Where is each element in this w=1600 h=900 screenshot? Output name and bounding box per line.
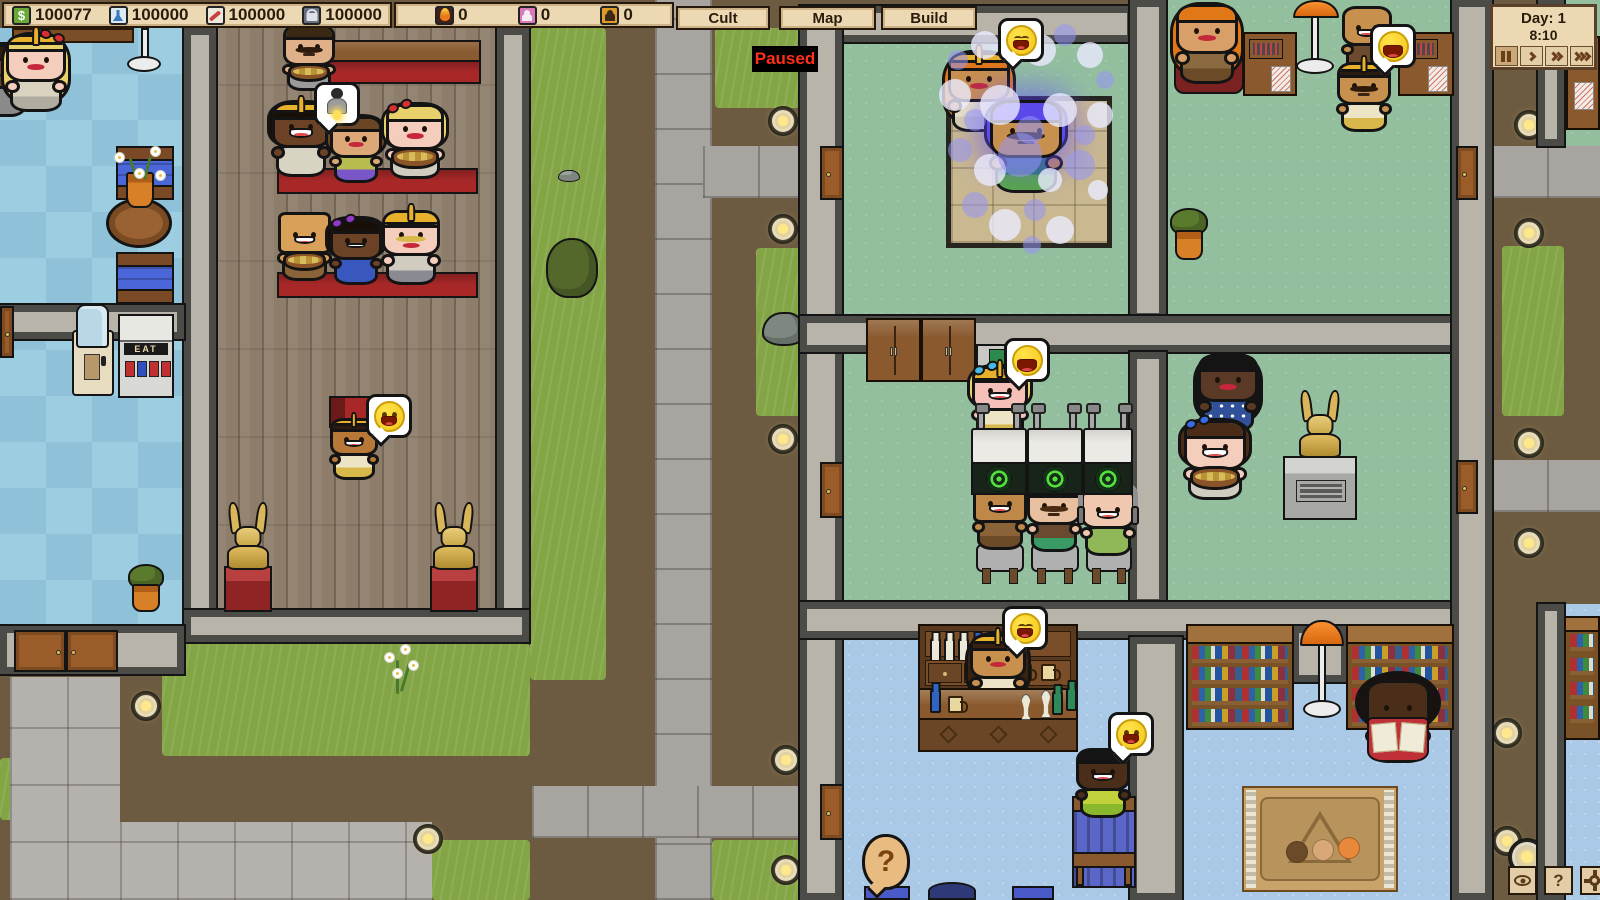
- build-button[interactable]: Build: [881, 6, 977, 30]
- ritual-bubble: [939, 79, 971, 111]
- resource-security: 100000: [302, 5, 382, 25]
- bar-counter-front: [918, 718, 1078, 752]
- ground-light: [768, 424, 798, 454]
- bush[interactable]: [546, 238, 598, 298]
- time-label: 8:10: [1493, 27, 1594, 43]
- partial-table: [928, 882, 976, 900]
- idol-pedestal: [224, 566, 272, 612]
- shrine-pedestal: [1283, 456, 1357, 520]
- resource-panel: $100077100000100000100000: [2, 2, 392, 28]
- person-desk-woman[interactable]: [1176, 4, 1238, 91]
- shelf-bottle: [930, 637, 941, 662]
- shelf-mug: [1041, 664, 1056, 681]
- emote-laugh: [1370, 24, 1416, 68]
- resource-value: 100000: [229, 5, 286, 25]
- path: [120, 822, 432, 900]
- emote-joy: [998, 18, 1044, 62]
- standing-lamp-pole: [1311, 14, 1319, 64]
- meter-panel: 000: [394, 2, 674, 28]
- ritual-bubble: [1087, 102, 1113, 128]
- resource-value: 0: [541, 5, 550, 25]
- wall: [1130, 0, 1166, 320]
- resource-value: 0: [623, 5, 632, 25]
- door-double-right[interactable]: [66, 630, 118, 672]
- door[interactable]: [820, 462, 844, 518]
- flower: [155, 170, 166, 181]
- standing-lamp-base: [1303, 700, 1341, 718]
- wall: [184, 28, 216, 642]
- waiting-chair[interactable]: [116, 252, 174, 304]
- bookshelf[interactable]: [1564, 616, 1600, 740]
- bottle: [1052, 690, 1063, 715]
- vending-sign: EAT: [124, 343, 168, 355]
- ground-light: [1514, 218, 1544, 248]
- ground-light: [768, 214, 798, 244]
- person-salon-client-3[interactable]: [1081, 486, 1135, 562]
- door[interactable]: [1456, 460, 1478, 514]
- resource-influence: 100000: [206, 5, 286, 25]
- vending-machine[interactable]: EAT: [118, 314, 174, 398]
- path: [655, 0, 712, 900]
- shrine-statue[interactable]: [1294, 390, 1346, 462]
- map-button[interactable]: Map: [779, 6, 876, 30]
- ground-light: [413, 824, 443, 854]
- door[interactable]: [820, 146, 844, 200]
- speaker-icon: [518, 6, 537, 25]
- paused-indicator: Paused: [752, 46, 818, 72]
- play-button[interactable]: [1520, 46, 1543, 66]
- ritual-bubble: [998, 133, 1042, 177]
- person-lobby-priestess[interactable]: [6, 34, 66, 118]
- ritual-bubble: [948, 138, 972, 162]
- wall: [800, 6, 842, 900]
- person-pew-woman-brown[interactable]: [330, 116, 382, 189]
- game-viewport[interactable]: EAT: [0, 0, 1600, 900]
- pebble: [558, 170, 580, 182]
- floor-lamp-base: [127, 56, 161, 72]
- idol-statue[interactable]: [222, 502, 274, 572]
- pause-button[interactable]: [1495, 46, 1518, 66]
- resource-value: 100000: [132, 5, 189, 25]
- ground-light: [771, 745, 801, 775]
- ritual-bubble: [1077, 42, 1103, 68]
- settings-button[interactable]: [1580, 866, 1600, 895]
- ritual-bubble: [1096, 71, 1114, 89]
- ritual-bubble: [1038, 168, 1062, 192]
- door[interactable]: [0, 306, 14, 358]
- visibility-button[interactable]: [1508, 866, 1537, 895]
- cultist-icon: [600, 6, 619, 25]
- door[interactable]: [1456, 146, 1478, 200]
- grass: [530, 28, 606, 680]
- ritual-bubble: [1046, 216, 1074, 244]
- emote-smile: [366, 394, 412, 438]
- flower: [134, 168, 145, 179]
- ground-light: [1514, 428, 1544, 458]
- ground-light: [1492, 718, 1522, 748]
- security-icon: [302, 6, 321, 25]
- path: [10, 677, 120, 900]
- ritual-bubble: [1043, 93, 1077, 127]
- ground-light: [771, 855, 801, 885]
- wall: [497, 28, 529, 642]
- flower: [392, 668, 403, 679]
- wall: [1130, 637, 1182, 900]
- partial-chair: [1012, 886, 1054, 900]
- fastest-forward-button[interactable]: [1570, 46, 1593, 66]
- bottle: [930, 688, 941, 713]
- ground-light: [768, 106, 798, 136]
- path: [532, 786, 842, 838]
- standing-lamp-base: [1296, 58, 1334, 74]
- emote-laugh: [1004, 338, 1050, 382]
- brainwash-machine[interactable]: [1083, 404, 1133, 495]
- wall: [1452, 0, 1492, 900]
- cult-button[interactable]: Cult: [676, 6, 770, 30]
- gear-icon: [1589, 875, 1600, 886]
- person-pew-man-helmet[interactable]: [382, 210, 440, 291]
- idol-statue[interactable]: [428, 502, 480, 572]
- bottle: [1066, 686, 1077, 711]
- ritual-bubble: [1024, 199, 1046, 221]
- ritual-bubble: [1075, 125, 1095, 145]
- flower: [384, 652, 395, 663]
- beer-mug: [948, 696, 963, 713]
- emote-figure: [314, 82, 360, 126]
- brainwash-machine[interactable]: [1027, 404, 1083, 495]
- flower: [408, 660, 419, 671]
- ritual-bubble: [1088, 180, 1108, 200]
- wall: [1538, 604, 1564, 900]
- resource-speaker: 0: [518, 5, 550, 25]
- ritual-bubble: [1054, 24, 1076, 46]
- grass: [162, 644, 530, 756]
- emote-joy: [1002, 606, 1048, 650]
- person-reader[interactable]: [1366, 680, 1430, 770]
- ritual-bubble: [980, 85, 1020, 125]
- research-icon: [109, 6, 128, 25]
- ritual-bubble: [971, 31, 999, 59]
- grass: [432, 840, 530, 900]
- office-desk[interactable]: [1243, 32, 1297, 96]
- resource-research: 100000: [109, 5, 189, 25]
- person-pew-woman-bow[interactable]: [330, 218, 382, 291]
- rug: [1242, 786, 1398, 892]
- emote-question: ?: [862, 834, 910, 890]
- ritual-bubble: [1065, 150, 1095, 180]
- bookshelf[interactable]: [1186, 624, 1294, 730]
- resource-heat: 0: [435, 5, 467, 25]
- money-icon: $: [12, 6, 31, 25]
- brainwash-machine[interactable]: [971, 404, 1027, 495]
- ritual-bubble: [989, 209, 1021, 241]
- door[interactable]: [820, 784, 844, 840]
- path: [1492, 146, 1600, 198]
- ritual-bubble: [1023, 236, 1041, 254]
- wall: [184, 610, 529, 642]
- ritual-bubble: [962, 192, 988, 218]
- eye-icon: [1514, 875, 1531, 886]
- help-button[interactable]: ?: [1544, 866, 1573, 895]
- door-double-left[interactable]: [14, 630, 66, 672]
- resource-value: 100000: [325, 5, 382, 25]
- resource-cultist: 0: [600, 5, 632, 25]
- ground-light: [1514, 528, 1544, 558]
- grass: [1502, 246, 1564, 416]
- flower: [150, 146, 161, 157]
- path: [1492, 460, 1600, 512]
- emote-smile: [1108, 712, 1154, 756]
- shelf-bottle: [944, 637, 955, 662]
- fast-forward-button[interactable]: [1545, 46, 1568, 66]
- wall: [1130, 352, 1166, 606]
- day-label: Day: 1: [1493, 10, 1594, 27]
- clock-panel: Day: 1 8:10: [1490, 4, 1597, 70]
- person-statue-viewer-2[interactable]: [1184, 420, 1246, 507]
- resource-value: 100077: [35, 5, 92, 25]
- plant-pot: [132, 584, 160, 612]
- ritual-bubble: [948, 50, 968, 70]
- resource-value: 0: [458, 5, 467, 25]
- person-pew-man-square[interactable]: [278, 212, 331, 286]
- standing-lamp-pole: [1318, 644, 1326, 704]
- person-pew-woman-blonde[interactable]: [386, 104, 444, 185]
- influence-icon: [206, 6, 225, 25]
- resource-money: $100077: [12, 5, 92, 25]
- flower: [114, 152, 125, 163]
- idol-pedestal: [430, 566, 478, 612]
- plant-pot: [1175, 230, 1203, 260]
- water-cooler-bottle: [76, 304, 109, 348]
- heat-icon: [435, 6, 454, 25]
- flower: [400, 644, 411, 655]
- ground-light: [131, 691, 161, 721]
